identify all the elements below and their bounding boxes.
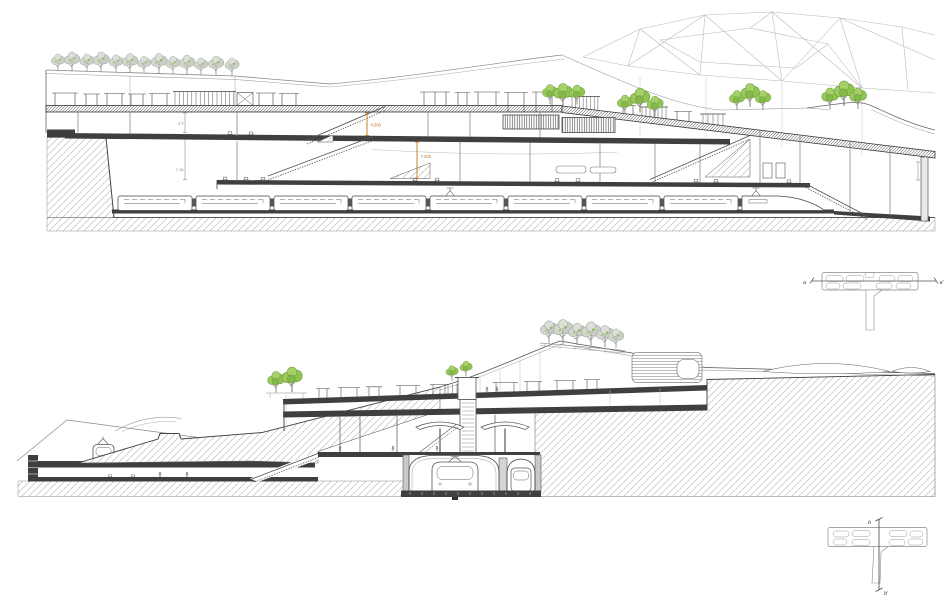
dim-label-lower: 7.15 <box>176 167 185 172</box>
cut-label-b-prime: b' <box>884 591 889 597</box>
key-plan-aa: a a' <box>803 273 945 331</box>
roof-pod <box>677 360 699 379</box>
plan-stem <box>872 547 888 584</box>
drain <box>452 497 458 500</box>
berm-ramp <box>78 387 440 482</box>
drawing-sheet: 3.5 7.15 4.500 7.200 a a' <box>0 0 950 600</box>
section-bb-drawing <box>17 320 935 501</box>
roof-mound <box>763 364 890 374</box>
grille-box <box>562 118 615 133</box>
elevation-label-b: 7.200 <box>421 154 432 159</box>
train-side-view <box>118 188 825 211</box>
pantograph-icon <box>446 188 454 196</box>
key-plan-bb: b b' <box>828 518 927 598</box>
elevation-label-a: 4.500 <box>371 123 382 128</box>
cut-label-b: b <box>868 520 871 526</box>
section-aa-drawing: 3.5 7.15 4.500 7.200 <box>46 12 935 231</box>
lounge-sofa <box>556 166 586 173</box>
mushroom-column <box>416 422 464 430</box>
roof-tree-row <box>51 52 239 76</box>
right-wall <box>921 157 928 221</box>
deck-slabs <box>46 106 935 159</box>
elevator-shaft <box>776 163 785 178</box>
sections-canvas: 3.5 7.15 4.500 7.200 a a' <box>0 0 950 600</box>
roof-mound <box>892 368 930 374</box>
grille-box <box>503 115 559 129</box>
pantograph-icon <box>752 188 760 196</box>
wireframe-roof-structure <box>583 12 935 93</box>
curved-canopy <box>115 417 182 431</box>
cut-label-a-prime: a' <box>940 280 945 286</box>
elevator-shaft <box>763 163 772 178</box>
plan-stem <box>866 290 882 330</box>
metro-train-front-small <box>511 468 531 492</box>
pantograph-icon <box>98 437 108 445</box>
metro-train-front <box>432 457 478 492</box>
dim-label-upper: 3.5 <box>178 121 184 126</box>
cut-label-a: a <box>803 280 806 286</box>
lounge-sofa <box>590 167 616 173</box>
mushroom-column <box>481 422 529 430</box>
ground-hatch <box>47 130 935 232</box>
tunnel-level <box>401 455 541 500</box>
